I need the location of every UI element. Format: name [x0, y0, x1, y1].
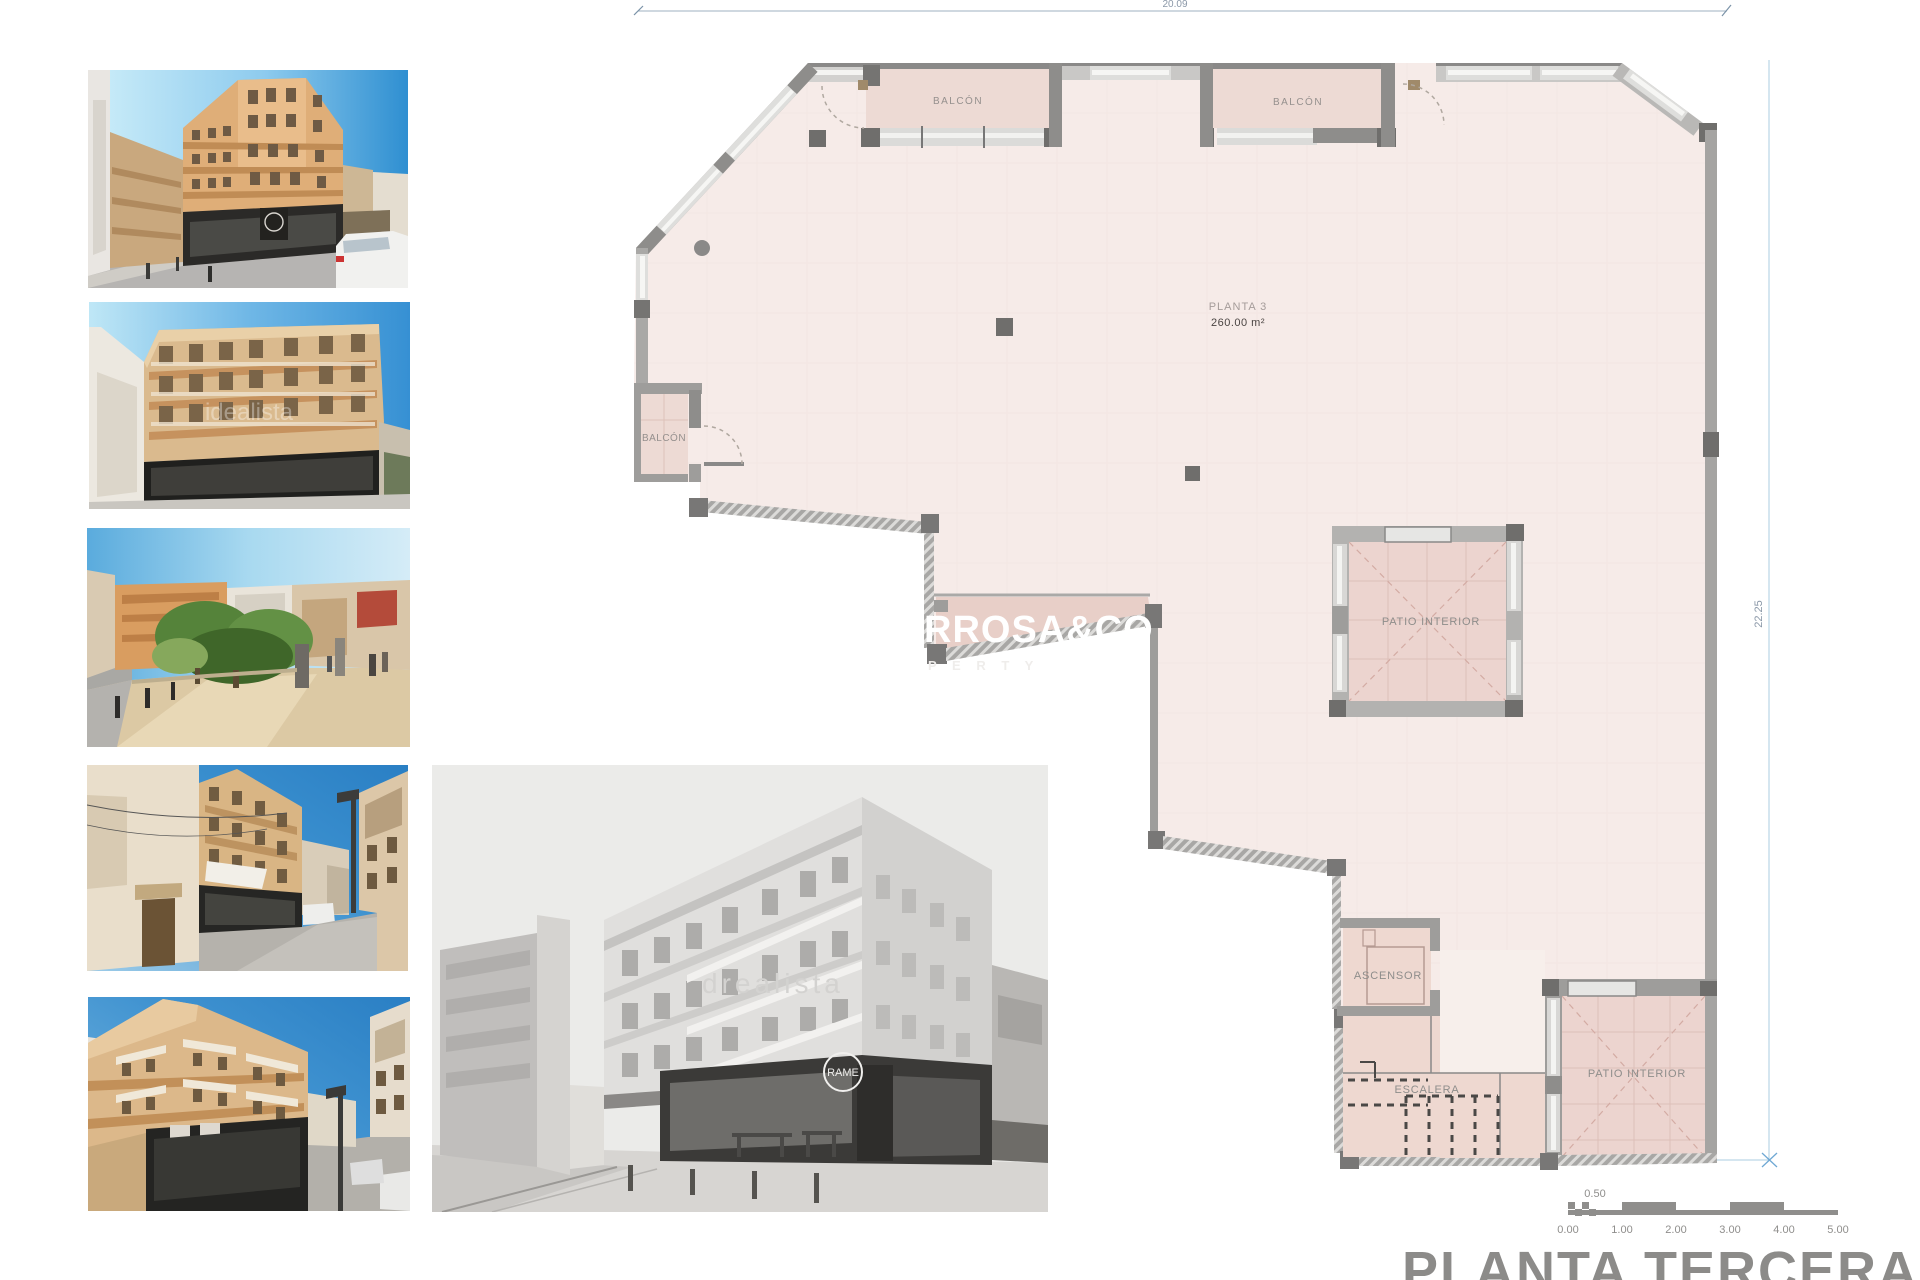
- svg-text:RROSA&CO: RROSA&CO: [924, 609, 1154, 651]
- svg-text:BALCÓN: BALCÓN: [933, 94, 983, 107]
- svg-text:22.25: 22.25: [1753, 600, 1765, 628]
- svg-text:2.00: 2.00: [1665, 1224, 1686, 1236]
- svg-text:BALCÓN: BALCÓN: [642, 431, 686, 444]
- svg-text:BALCÓN: BALCÓN: [1273, 95, 1323, 108]
- svg-text:260.00 m²: 260.00 m²: [1211, 317, 1265, 329]
- svg-text:ESCALERA: ESCALERA: [1394, 1084, 1459, 1096]
- svg-text:0.00: 0.00: [1557, 1224, 1578, 1236]
- svg-text:0.50: 0.50: [1584, 1188, 1605, 1200]
- svg-text:ASCENSOR: ASCENSOR: [1354, 970, 1422, 982]
- svg-text:PLANTA 3: PLANTA 3: [1209, 301, 1268, 313]
- svg-text:PATIO INTERIOR: PATIO INTERIOR: [1382, 616, 1480, 628]
- svg-text:3.00: 3.00: [1719, 1224, 1740, 1236]
- svg-text:PATIO INTERIOR: PATIO INTERIOR: [1588, 1068, 1686, 1080]
- svg-text:4.00: 4.00: [1773, 1224, 1794, 1236]
- svg-text:idealista: idealista: [205, 399, 294, 426]
- svg-text:5.00: 5.00: [1827, 1224, 1848, 1236]
- svg-text:PLANTA TERCERA: PLANTA TERCERA: [1402, 1241, 1919, 1280]
- svg-text:20.09: 20.09: [1162, 0, 1187, 10]
- svg-text:P E R T Y: P E R T Y: [928, 658, 1039, 673]
- svg-text:1.00: 1.00: [1611, 1224, 1632, 1236]
